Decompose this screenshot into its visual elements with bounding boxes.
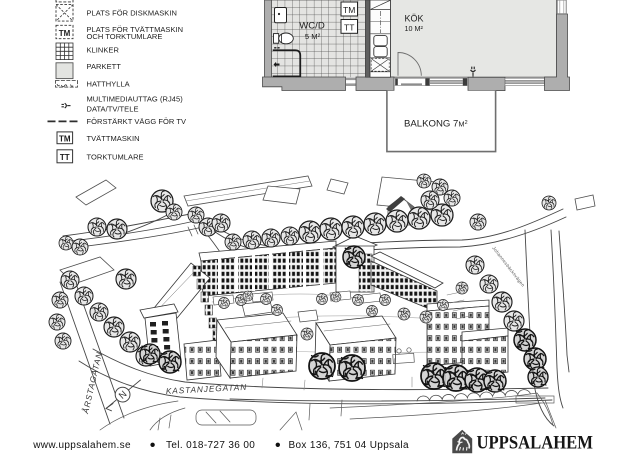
- svg-text:Box 136, 751 04 Uppsala: Box 136, 751 04 Uppsala: [289, 440, 409, 451]
- svg-text:PLATS FÖR DISKMASKIN: PLATS FÖR DISKMASKIN: [87, 9, 177, 18]
- svg-text:KASTANJEGATAN: KASTANJEGATAN: [166, 382, 248, 396]
- svg-text:TM: TM: [59, 134, 71, 143]
- svg-text:MULTIMEDIAUTTAG (RJ45): MULTIMEDIAUTTAG (RJ45): [87, 94, 184, 103]
- svg-text:HATTHYLLA: HATTHYLLA: [87, 80, 130, 89]
- svg-text:5 M²: 5 M²: [305, 32, 321, 41]
- svg-text:www.uppsalahem.se: www.uppsalahem.se: [32, 440, 131, 451]
- svg-text:OCH TORKTUMLARE: OCH TORKTUMLARE: [87, 32, 163, 41]
- svg-text:FÖRSTÄRKT VÄGG FÖR TV: FÖRSTÄRKT VÄGG FÖR TV: [87, 117, 187, 126]
- svg-text:TT: TT: [60, 153, 70, 162]
- svg-text:BALKONG 7M2: BALKONG 7M2: [404, 119, 468, 130]
- svg-text:ÅRSTAGATAN: ÅRSTAGATAN: [80, 350, 104, 415]
- svg-text:DATA/TV/TELE: DATA/TV/TELE: [87, 105, 139, 114]
- svg-text:10 M²: 10 M²: [405, 24, 424, 33]
- svg-text:KLINKER: KLINKER: [87, 45, 120, 54]
- svg-text:TM: TM: [343, 5, 355, 15]
- svg-text:TT: TT: [344, 23, 354, 33]
- svg-text:Tel. 018-727 36 00: Tel. 018-727 36 00: [166, 440, 255, 451]
- svg-text:TORKTUMLARE: TORKTUMLARE: [87, 152, 144, 161]
- svg-text:TVÄTTMASKIN: TVÄTTMASKIN: [87, 134, 140, 143]
- svg-text:WC/D: WC/D: [299, 21, 325, 32]
- svg-text:UPPSALAHEM: UPPSALAHEM: [477, 431, 593, 452]
- svg-text:PARKETT: PARKETT: [87, 62, 122, 71]
- svg-text:KÖK: KÖK: [405, 13, 424, 23]
- svg-text:TM: TM: [59, 29, 71, 38]
